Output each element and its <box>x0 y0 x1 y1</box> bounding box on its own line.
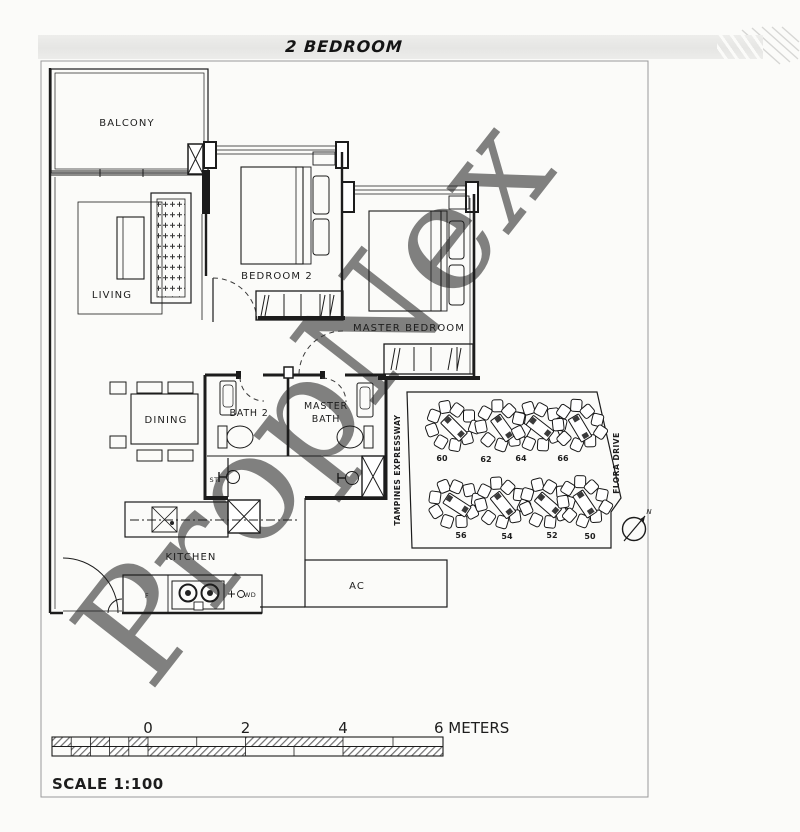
unit-type-title: 2 BEDROOM <box>37 35 651 59</box>
ac-ledge <box>305 560 447 607</box>
scale-tick-2: 2 <box>241 719 251 737</box>
block-cluster <box>546 394 614 458</box>
north-arrow-icon <box>623 516 646 541</box>
bath2-label: BATH 2 <box>229 408 268 419</box>
block-label: 52 <box>546 531 557 540</box>
block-cluster <box>552 471 618 533</box>
block-label: 66 <box>557 454 569 463</box>
master-bedroom-label: MASTER BEDROOM <box>353 323 465 334</box>
scale-tick-0: 0 <box>143 719 153 737</box>
sofa <box>117 217 144 279</box>
dining-label: DINING <box>145 415 188 426</box>
north-label: N <box>646 508 652 516</box>
master-bath-label-line1: MASTER <box>304 401 348 412</box>
fridge-label: F <box>145 592 149 600</box>
bed-bedroom2 <box>241 167 303 264</box>
plan-drawing: PropNex <box>0 0 800 832</box>
balcony-label: BALCONY <box>99 118 154 129</box>
block-label: 56 <box>455 531 467 540</box>
block-label: 50 <box>584 532 596 541</box>
floor-plan-page: 2 BEDROOM <box>0 0 800 832</box>
bedroom2-label: BEDROOM 2 <box>241 271 313 282</box>
scale-tick-4: 4 <box>338 719 348 737</box>
block-cluster <box>425 400 482 452</box>
pillow <box>313 176 329 214</box>
scale-ratio-text: SCALE 1:100 <box>52 775 164 793</box>
band-hatch-decoration <box>717 35 763 59</box>
chair <box>110 382 126 394</box>
kitchen-label: KITCHEN <box>165 552 216 563</box>
block-label: 60 <box>436 454 448 463</box>
site-plan <box>407 392 646 548</box>
scale-bar <box>52 737 443 756</box>
chair <box>168 382 193 393</box>
scale-tick-6-meters: 6 METERS <box>434 719 509 737</box>
washer-dryer-label: WD <box>244 591 256 599</box>
block-label: 54 <box>501 532 513 541</box>
title-band: 2 BEDROOM <box>38 35 763 59</box>
block-label: 62 <box>480 455 491 464</box>
block-label: 64 <box>515 454 527 463</box>
road-label-tampines: TAMPINES EXPRESSWAY <box>393 414 402 525</box>
road-label-flora: FLORA DRIVE <box>612 432 621 493</box>
ac-label: AC <box>349 581 365 592</box>
store-label: ST <box>210 476 219 484</box>
chair <box>137 382 162 393</box>
living-label: LIVING <box>92 290 132 301</box>
bedroom2-window <box>204 142 348 168</box>
chair <box>110 436 126 448</box>
master-bath-label-line2: BATH <box>312 414 340 425</box>
